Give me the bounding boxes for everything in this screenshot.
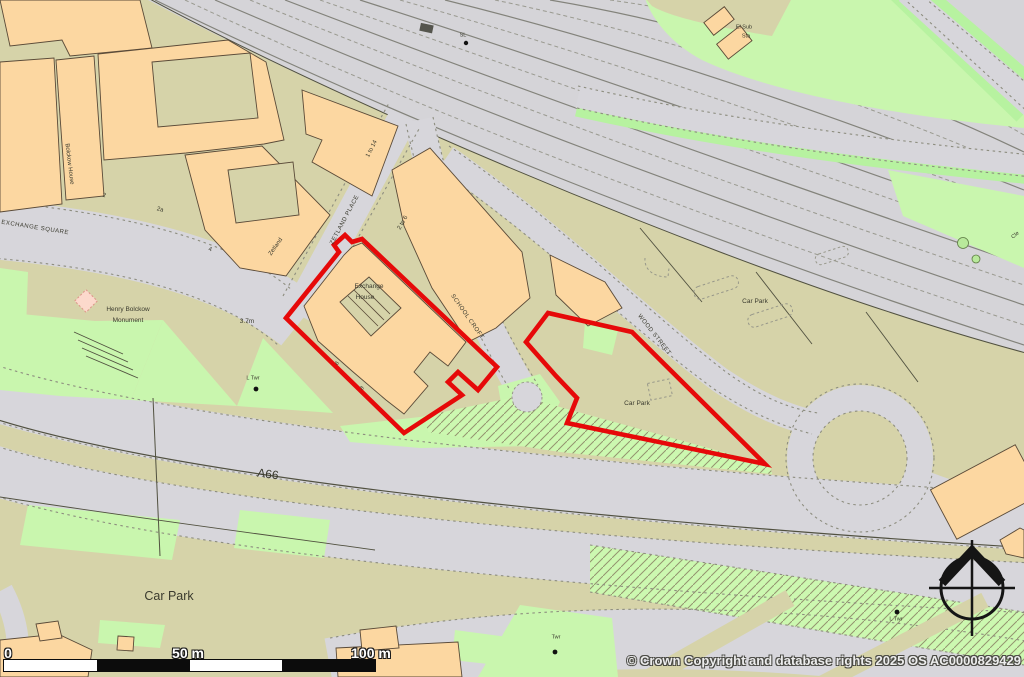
henry-bolckow-monument-line1: Henry Bolckow [106,307,149,314]
exchange-house-label-line1: Exchange [355,284,384,291]
scale-segment [190,660,283,671]
scale-segment [4,660,97,671]
scale-label-50m: 50 m [172,645,204,661]
spot-height-label: 3.7m [240,319,254,326]
el-sub-sta-label-line1: El Sub [736,25,752,31]
map-drawing [0,0,1024,677]
tower-label: Twr [552,635,561,641]
car-park-label-northeast: Car Park [742,299,768,306]
lighting-tower-label-1: L Twr [246,376,259,382]
lighting-tower-dot-1 [254,387,259,392]
scale-label-0: 0 [4,645,12,661]
tower-dot [553,650,558,655]
scale-segment [282,660,375,671]
lighting-tower-label-2: L Twr [889,617,902,623]
os-map-canvas: EXCHANGE SQUAREHenry BolckowMonumentBolc… [0,0,1024,677]
signal-label: SL [460,33,467,39]
henry-bolckow-monument-line2: Monument [113,318,144,325]
copyright-notice: © Crown Copyright and database rights 20… [627,653,1021,668]
lighting-tower-dot-2 [895,610,900,615]
a66-road-label: A66 [257,467,280,482]
el-sub-sta-label-line2: Sta [742,34,750,40]
exchange-house-label-line2: House [356,295,375,302]
scale-segment [97,660,190,671]
car-park-label-site: Car Park [624,401,650,408]
car-park-label-southwest: Car Park [144,590,193,603]
signal-dot [464,41,468,45]
scale-label-100m: 100 m [351,645,391,661]
